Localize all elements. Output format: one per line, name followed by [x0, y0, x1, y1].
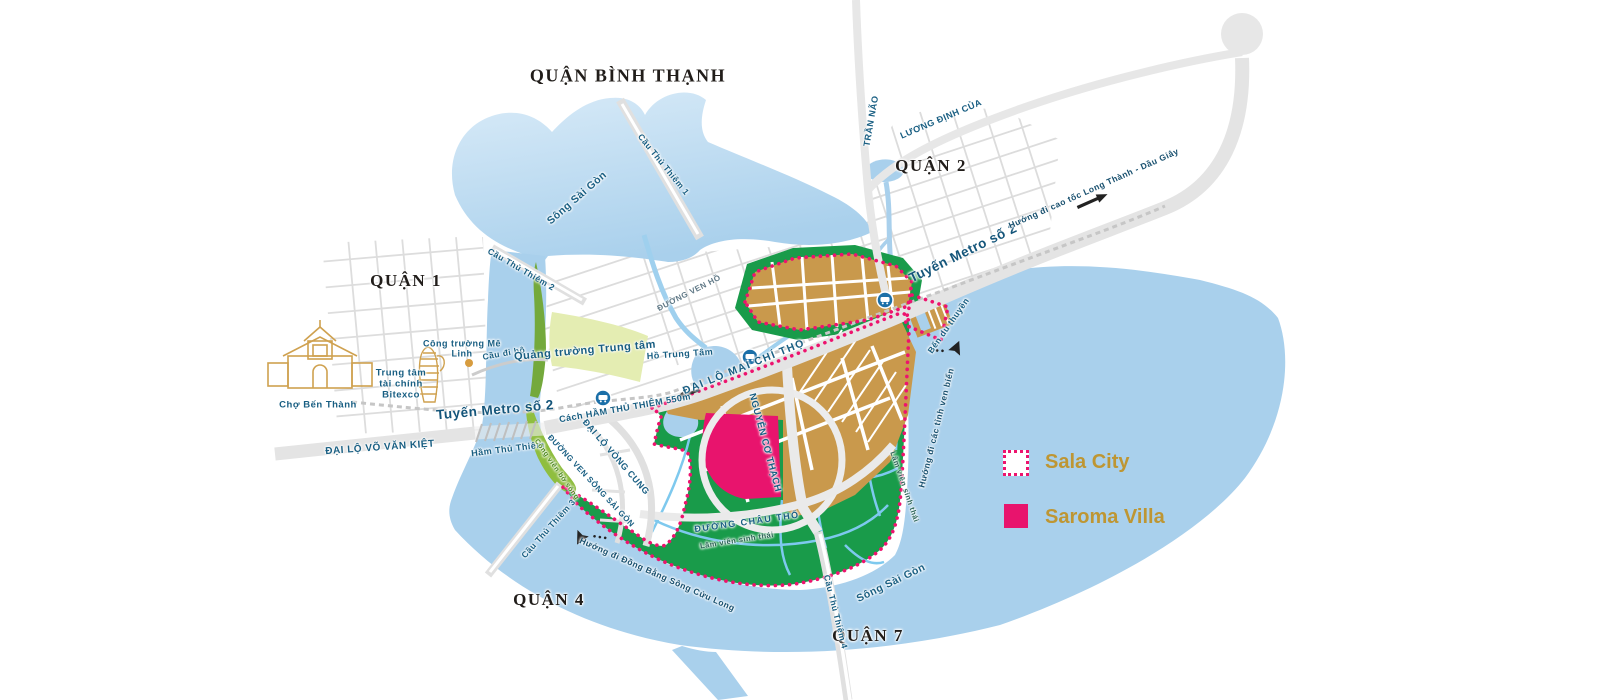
- map-canvas: QUẬN BÌNH THẠNH QUẬN 2 QUẬN 1 QUẬN 4 QUẬ…: [0, 0, 1600, 700]
- label-cho-ben-thanh: Chợ Bến Thành: [279, 401, 357, 412]
- legend-saroma-villa-label: Saroma Villa: [1045, 506, 1165, 529]
- label-quan-1: QUẬN 1: [370, 271, 442, 291]
- label-bitexco: Trung tâm tài chính Bitexco: [368, 369, 434, 402]
- legend-sala-city-label: Sala City: [1045, 451, 1129, 474]
- interchange-loop: [1221, 13, 1263, 55]
- legend-sala-city-swatch: [1003, 450, 1029, 476]
- legend-saroma-villa-swatch: [1004, 504, 1028, 528]
- label-quan-4: QUẬN 4: [513, 590, 585, 610]
- label-quan-2: QUẬN 2: [895, 156, 967, 176]
- metro-station-icon: [595, 390, 611, 406]
- label-me-linh: Công trường Mê Linh: [423, 339, 501, 360]
- label-quan-binh-thanh: QUẬN BÌNH THẠNH: [530, 66, 726, 87]
- metro-station-icon: [877, 292, 893, 308]
- me-linh-square-dot: [465, 359, 473, 367]
